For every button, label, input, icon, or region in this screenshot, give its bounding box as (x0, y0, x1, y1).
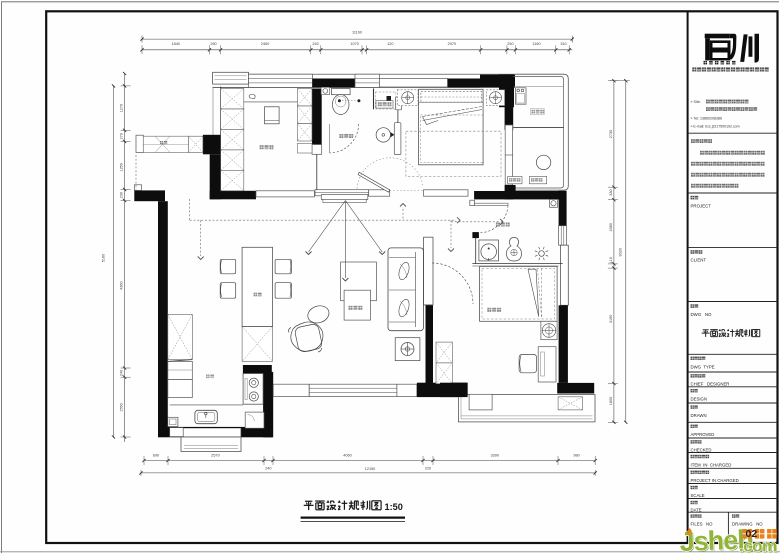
svg-text:310: 310 (560, 42, 566, 46)
svg-text:» Tel: 13860208386: » Tel: 13860208386 (691, 117, 723, 121)
svg-text:1160: 1160 (532, 42, 540, 46)
svg-text:» Site:: » Site: (691, 100, 701, 104)
svg-text:1680: 1680 (609, 223, 613, 231)
svg-text:120: 120 (387, 42, 393, 46)
svg-text:980: 980 (573, 453, 579, 457)
svg-text:240: 240 (265, 467, 271, 471)
svg-text:9020: 9020 (619, 248, 623, 256)
svg-text:2730: 2730 (609, 130, 613, 138)
svg-text:ITEM IN CHARGED: ITEM IN CHARGED (691, 463, 732, 468)
svg-text:260: 260 (210, 42, 216, 46)
svg-text:4360: 4360 (120, 281, 124, 289)
svg-text:PROJECT: PROJECT (691, 203, 712, 208)
svg-text:5160: 5160 (102, 254, 106, 262)
svg-text:250: 250 (507, 42, 513, 46)
svg-text:1:50: 1:50 (385, 502, 403, 512)
svg-text:02: 02 (746, 528, 758, 540)
svg-text:1550: 1550 (120, 403, 124, 411)
svg-text:270: 270 (120, 133, 124, 139)
svg-text:CLIENT: CLIENT (691, 258, 707, 263)
svg-text:CHECKED: CHECKED (691, 447, 712, 452)
svg-text:240: 240 (120, 370, 124, 376)
svg-text:12150: 12150 (365, 467, 376, 471)
svg-text:SCALE: SCALE (691, 493, 705, 498)
svg-text:220: 220 (425, 467, 431, 471)
svg-text:DESIGN: DESIGN (691, 396, 707, 401)
svg-text:DWG NO: DWG NO (691, 312, 713, 317)
svg-text:PROJECT IN CHARGED: PROJECT IN CHARGED (691, 478, 739, 483)
svg-text:DATE: DATE (691, 507, 702, 512)
svg-text:230: 230 (120, 192, 124, 198)
svg-text:» E-mail: bcs.j2217509192.com: » E-mail: bcs.j2217509192.com (691, 125, 740, 129)
svg-text:690: 690 (153, 453, 159, 457)
svg-text:11190: 11190 (352, 31, 362, 35)
svg-text:3190: 3190 (609, 315, 613, 323)
svg-text:2970: 2970 (448, 42, 456, 46)
svg-text:CHIEF DESIGNER: CHIEF DESIGNER (691, 381, 730, 386)
svg-text:240: 240 (312, 42, 318, 46)
svg-text:110: 110 (609, 257, 613, 263)
svg-text:330: 330 (609, 189, 613, 195)
svg-text:1800: 1800 (609, 397, 613, 405)
svg-text:2570: 2570 (211, 453, 219, 457)
svg-text:APPROVED: APPROVED (691, 432, 715, 437)
svg-text:1840: 1840 (171, 42, 179, 46)
svg-text:1270: 1270 (120, 104, 124, 112)
svg-text:DRAWN: DRAWN (691, 413, 707, 418)
svg-text:1070: 1070 (350, 42, 358, 46)
svg-text:4060: 4060 (343, 453, 351, 457)
svg-text:1250: 1250 (120, 163, 124, 171)
svg-text:DWG TYPE: DWG TYPE (691, 364, 715, 369)
svg-text:3390: 3390 (491, 453, 499, 457)
svg-text:2460: 2460 (261, 42, 269, 46)
